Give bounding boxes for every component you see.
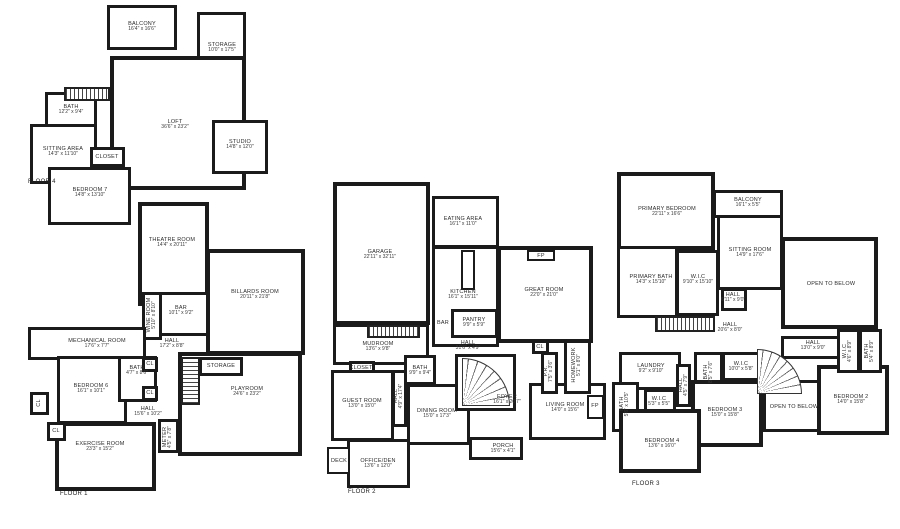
f1-cl-d-outline bbox=[142, 386, 158, 401]
f3-hall-right-outline bbox=[781, 336, 845, 359]
floor-plan-canvas: BALCONY 16'4" x 16'6" STORAGE 10'0" x 17… bbox=[0, 0, 900, 529]
room-label-f1-hall-lower: HALL 15'6" x 10'2" bbox=[134, 406, 161, 418]
f3-wic-main-outline bbox=[676, 250, 719, 316]
room-label-f3-hall-upper: HALL 20'6" x 8'0" bbox=[718, 322, 743, 334]
f2-stairs bbox=[367, 325, 420, 338]
room-dims: 31'6" x 4'9" bbox=[456, 346, 481, 352]
f2-hall-v-outline bbox=[392, 370, 407, 427]
f4-stairs bbox=[64, 87, 110, 101]
f4-studio-outline bbox=[212, 120, 268, 174]
room-dims: 20'6" x 8'0" bbox=[718, 328, 743, 334]
f2-fireplace-great bbox=[527, 250, 555, 261]
f2-eating-outline bbox=[432, 196, 499, 248]
room-label-f1-hall-upper: HALL 17'2" x 8'8" bbox=[160, 338, 185, 350]
f4-bedroom7-outline bbox=[48, 167, 131, 225]
f1-billards-outline bbox=[206, 249, 305, 355]
f1-meter-outline bbox=[158, 419, 179, 453]
f2-pr-outline bbox=[541, 352, 558, 394]
f3-wic-mid-outline bbox=[722, 352, 762, 381]
floor4-label: FLOOR 4 bbox=[28, 179, 56, 185]
floor2-label: FLOOR 2 bbox=[348, 489, 376, 495]
room-name: HALL bbox=[141, 406, 156, 412]
f2-kitchen-island bbox=[461, 250, 475, 290]
f1-theatre-outline bbox=[138, 202, 209, 306]
f3-bath-right-outline bbox=[859, 329, 882, 373]
f3-open-below-right-outline bbox=[781, 237, 878, 329]
f3-hall-v-outline bbox=[676, 364, 691, 407]
f1-stairs bbox=[181, 357, 200, 405]
f4-closet-outline bbox=[90, 147, 125, 167]
floor1-label: FLOOR 1 bbox=[60, 491, 88, 497]
f2-porch-outline bbox=[469, 437, 523, 460]
f3-stairs bbox=[655, 316, 715, 332]
f2-homework-outline bbox=[564, 340, 591, 394]
f3-sitting-outline bbox=[717, 215, 783, 290]
f3-primary-bath-outline bbox=[617, 246, 678, 318]
f2-office-outline bbox=[347, 439, 410, 488]
f2-fireplace-living bbox=[587, 395, 604, 419]
room-name: HALL bbox=[723, 322, 738, 328]
f3-balcony-outline bbox=[713, 190, 783, 218]
f3-wic-right-outline bbox=[837, 329, 860, 373]
f1-storage-outline bbox=[199, 357, 243, 376]
f3-primary-bedroom-outline bbox=[617, 172, 715, 250]
f1-bedroom6-outline bbox=[57, 356, 127, 424]
f1-cl-c-outline bbox=[142, 357, 158, 372]
f2-bath-outline bbox=[404, 355, 436, 385]
f3-hall-small-outline bbox=[721, 288, 747, 311]
room-dims: 15'6" x 10'2" bbox=[134, 412, 161, 418]
f2-guest-outline bbox=[331, 370, 394, 441]
floor3-label: FLOOR 3 bbox=[632, 481, 660, 487]
f2-garage-outline bbox=[333, 182, 430, 325]
f1-cl-b-outline bbox=[47, 422, 66, 441]
f3-bedroom4-outline bbox=[619, 409, 701, 473]
f1-exercise-outline bbox=[55, 422, 156, 491]
f2-pantry-outline bbox=[451, 309, 498, 338]
room-name: HALL bbox=[165, 338, 180, 344]
f1-cl-a-outline bbox=[30, 392, 49, 415]
f3-bedroom3-outline bbox=[691, 380, 763, 447]
f4-balcony-outline bbox=[107, 5, 177, 50]
room-dims: 17'2" x 8'8" bbox=[160, 344, 185, 350]
f3-bedroom2-outline bbox=[817, 365, 889, 435]
f2-deck-outline bbox=[327, 447, 350, 474]
